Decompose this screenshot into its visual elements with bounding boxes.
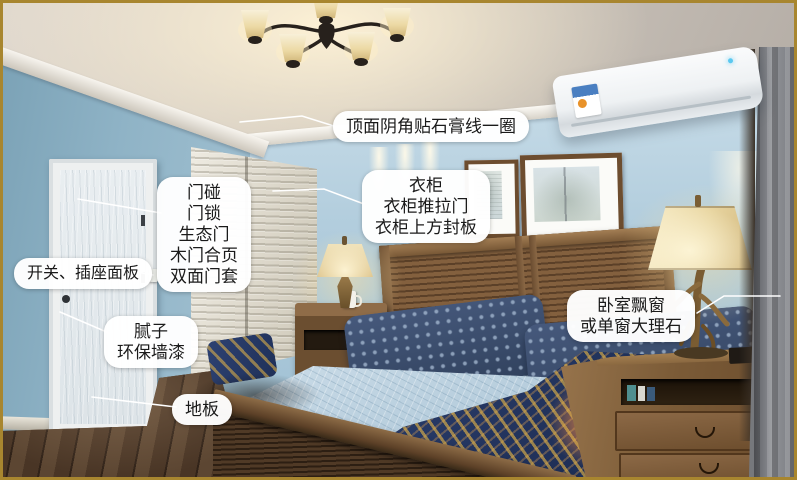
leader-wardrobe [273,189,364,204]
label-text: 衣柜 [375,175,477,196]
leader-door [78,199,161,213]
label-text: 双面门套 [170,266,238,287]
label-text: 生态门 [170,224,238,245]
leader-ceiling [240,116,337,127]
label-ceiling-molding: 顶面阴角贴石膏线一圈 [333,111,529,142]
label-text: 环保墙漆 [117,342,185,363]
label-text: 卧室飘窗 [580,295,682,316]
label-text: 开关、插座面板 [27,263,139,284]
label-text: 或单窗大理石 [580,316,682,337]
bedroom-photo: 顶面阴角贴石膏线一圈 门碰 门锁 生态门 木门合页 双面门套 开关、插座面板 腻… [3,3,794,477]
label-wall-finish: 腻子 环保墙漆 [104,316,198,368]
label-text: 木门合页 [170,245,238,266]
label-text: 门碰 [170,182,238,203]
label-bay-window: 卧室飘窗 或单窗大理石 [567,290,695,342]
label-text: 腻子 [117,321,185,342]
label-text: 地板 [185,399,219,420]
label-text: 衣柜上方封板 [375,217,477,238]
annotated-bedroom-diagram: 顶面阴角贴石膏线一圈 门碰 门锁 生态门 木门合页 双面门套 开关、插座面板 腻… [0,0,797,480]
label-text: 顶面阴角贴石膏线一圈 [346,116,516,137]
leader-window [697,296,780,313]
leader-wall [60,312,109,333]
leader-floor [92,397,176,407]
label-door-hardware: 门碰 门锁 生态门 木门合页 双面门套 [157,177,251,292]
label-text: 衣柜推拉门 [375,196,477,217]
label-switch-socket-panels: 开关、插座面板 [14,258,152,289]
label-wardrobe: 衣柜 衣柜推拉门 衣柜上方封板 [362,170,490,243]
label-floor: 地板 [172,394,232,425]
label-text: 门锁 [170,203,238,224]
